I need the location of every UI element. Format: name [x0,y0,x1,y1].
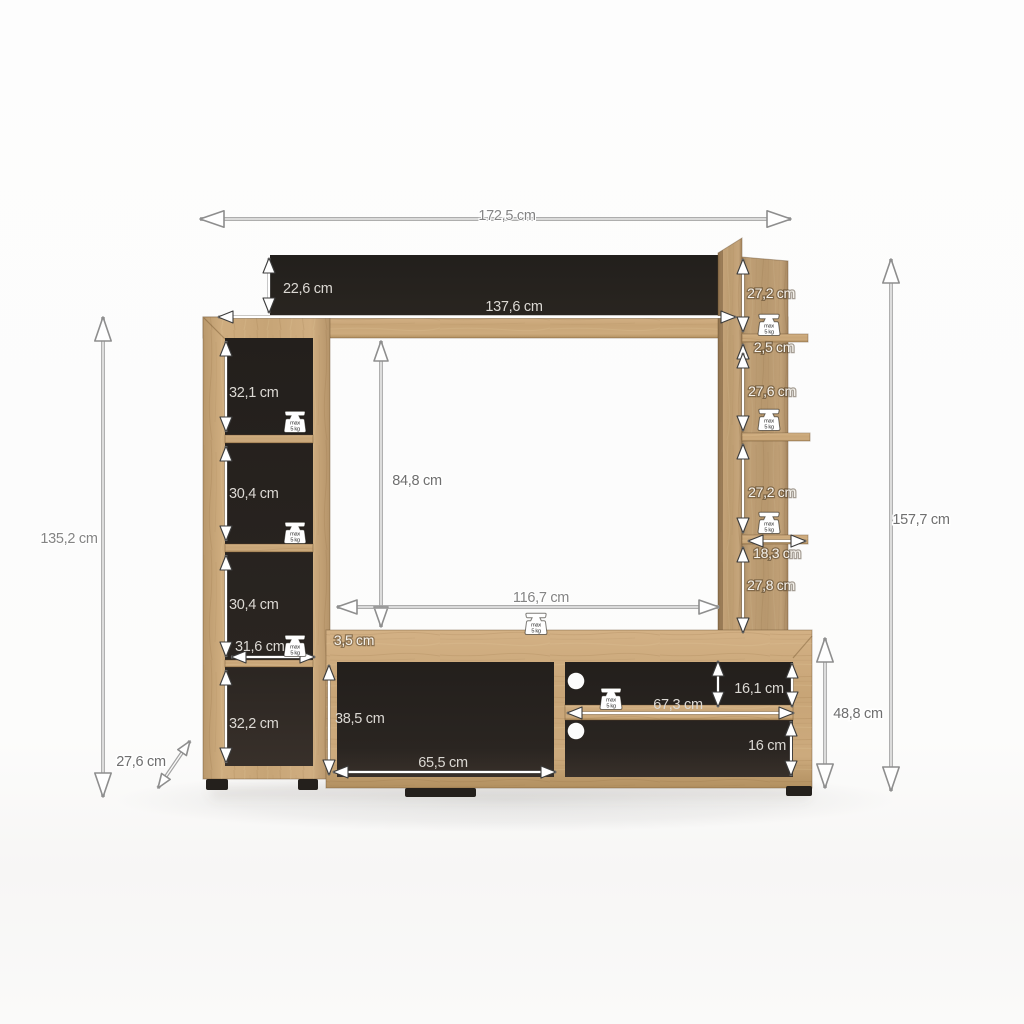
svg-text:137,6 cm: 137,6 cm [485,299,542,315]
svg-text:5 kg: 5 kg [764,528,774,534]
svg-text:48,8 cm: 48,8 cm [833,706,883,722]
svg-text:5 kg: 5 kg [290,651,300,657]
svg-text:16 cm: 16 cm [748,738,786,754]
svg-text:27,2 cm: 27,2 cm [747,285,795,301]
svg-text:65,5 cm: 65,5 cm [418,755,468,771]
svg-text:157,7 cm: 157,7 cm [892,512,949,528]
svg-text:2,5 cm: 2,5 cm [754,339,794,355]
svg-text:32,2 cm: 32,2 cm [229,716,279,732]
svg-text:31,6 cm: 31,6 cm [235,639,285,655]
svg-text:max: max [764,418,774,424]
svg-text:max: max [290,531,300,537]
svg-text:116,7 cm: 116,7 cm [513,590,569,606]
svg-text:172,5 cm: 172,5 cm [478,208,535,224]
svg-text:5 kg: 5 kg [290,538,300,544]
svg-text:5 kg: 5 kg [764,425,774,431]
svg-text:30,4 cm: 30,4 cm [229,597,279,613]
svg-text:max: max [764,323,774,329]
svg-text:27,6 cm: 27,6 cm [748,383,796,399]
svg-text:5 kg: 5 kg [764,330,774,336]
svg-text:38,5 cm: 38,5 cm [335,711,385,727]
svg-text:max: max [290,420,300,426]
svg-text:max: max [531,622,541,628]
svg-text:27,8 cm: 27,8 cm [747,577,795,593]
svg-text:5 kg: 5 kg [606,704,616,710]
svg-text:84,8 cm: 84,8 cm [392,473,442,489]
svg-text:27,2 cm: 27,2 cm [748,484,796,500]
svg-text:max: max [606,697,616,703]
svg-text:67,3 cm: 67,3 cm [653,697,703,713]
svg-text:135,2 cm: 135,2 cm [40,531,97,547]
svg-text:22,6 cm: 22,6 cm [283,281,333,297]
svg-text:16,1 cm: 16,1 cm [734,681,784,697]
svg-text:27,6 cm: 27,6 cm [116,754,166,770]
svg-text:32,1 cm: 32,1 cm [229,385,279,401]
svg-text:30,4 cm: 30,4 cm [229,486,279,502]
svg-text:5 kg: 5 kg [531,629,541,635]
svg-text:5 kg: 5 kg [290,427,300,433]
svg-text:3,5 cm: 3,5 cm [334,632,374,648]
svg-text:max: max [290,644,300,650]
svg-text:18,3 cm: 18,3 cm [753,545,801,561]
svg-text:max: max [764,521,774,527]
